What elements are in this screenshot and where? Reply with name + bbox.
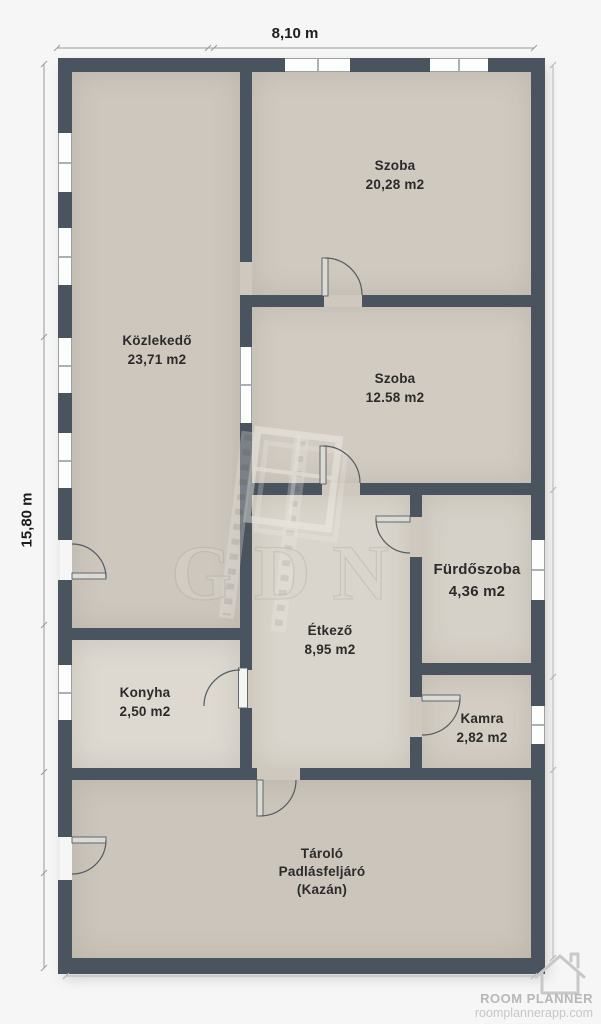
wall bbox=[72, 768, 257, 780]
wall bbox=[240, 295, 324, 307]
wall bbox=[531, 58, 545, 540]
window bbox=[430, 58, 488, 72]
room-label-szoba-kis: Szoba 12.58 m2 bbox=[366, 369, 425, 407]
wall bbox=[72, 628, 240, 640]
dimension-width-label: 8,10 m bbox=[272, 25, 319, 42]
room-area: 2,50 m2 bbox=[120, 702, 171, 721]
wall bbox=[350, 58, 430, 72]
room-label-konyha: Konyha 2,50 m2 bbox=[120, 683, 171, 721]
wall bbox=[531, 600, 545, 706]
room-label-szoba-nagy: Szoba 20,28 m2 bbox=[366, 156, 425, 194]
wall bbox=[58, 958, 545, 974]
room-name: Szoba bbox=[366, 156, 425, 175]
wall bbox=[410, 495, 422, 517]
interior-window bbox=[240, 347, 252, 423]
room-label-tarolo: Tároló Padlásfeljáró (Kazán) bbox=[279, 845, 366, 899]
dimension-height-label: 15,80 m bbox=[19, 492, 36, 547]
wall bbox=[410, 663, 531, 675]
room-name: Szoba bbox=[366, 369, 425, 388]
wall bbox=[410, 737, 422, 768]
window bbox=[531, 706, 545, 744]
wall bbox=[360, 483, 531, 495]
wall bbox=[58, 58, 285, 72]
window bbox=[58, 338, 72, 393]
wall bbox=[531, 744, 545, 974]
wall bbox=[58, 58, 72, 133]
room-name-line3: (Kazán) bbox=[279, 881, 366, 899]
wall bbox=[240, 423, 252, 670]
room-area: 23,71 m2 bbox=[122, 350, 191, 369]
wall bbox=[58, 580, 72, 665]
wall bbox=[58, 192, 72, 228]
window bbox=[58, 433, 72, 488]
window bbox=[531, 540, 545, 600]
room-name-line2: Padlásfeljáró bbox=[279, 863, 366, 881]
wall bbox=[58, 393, 72, 433]
room-area: 20,28 m2 bbox=[366, 175, 425, 194]
room-label-kozlekedo: Közlekedő 23,71 m2 bbox=[122, 331, 191, 369]
wall bbox=[410, 557, 422, 697]
room-name: Közlekedő bbox=[122, 331, 191, 350]
wall bbox=[58, 720, 72, 837]
room-label-kamra: Kamra 2,82 m2 bbox=[457, 709, 508, 747]
floorplan-canvas: GDN bbox=[0, 0, 601, 1024]
wall bbox=[58, 285, 72, 338]
window bbox=[285, 58, 350, 72]
wall bbox=[240, 72, 252, 262]
room-name: Kamra bbox=[457, 709, 508, 728]
brand-url: roomplannerapp.com bbox=[475, 1006, 593, 1020]
room-label-etkezo: Étkező 8,95 m2 bbox=[305, 621, 356, 659]
room-name: Fürdőszoba bbox=[434, 559, 521, 581]
wall bbox=[362, 295, 531, 307]
room-name: Tároló bbox=[279, 845, 366, 863]
room-area: 12.58 m2 bbox=[366, 388, 425, 407]
wall bbox=[58, 488, 72, 540]
wall bbox=[240, 708, 252, 768]
window bbox=[58, 133, 72, 192]
room-area: 2,82 m2 bbox=[457, 728, 508, 747]
room-name: Konyha bbox=[120, 683, 171, 702]
window bbox=[58, 228, 72, 285]
brand-name: ROOM PLANNER bbox=[480, 991, 593, 1006]
wall bbox=[240, 483, 322, 495]
room-area: 4,36 m2 bbox=[434, 581, 521, 603]
window bbox=[58, 665, 72, 720]
room-area: 8,95 m2 bbox=[305, 640, 356, 659]
room-label-furdoszoba: Fürdőszoba 4,36 m2 bbox=[434, 559, 521, 603]
wall bbox=[300, 768, 531, 780]
room-name: Étkező bbox=[305, 621, 356, 640]
